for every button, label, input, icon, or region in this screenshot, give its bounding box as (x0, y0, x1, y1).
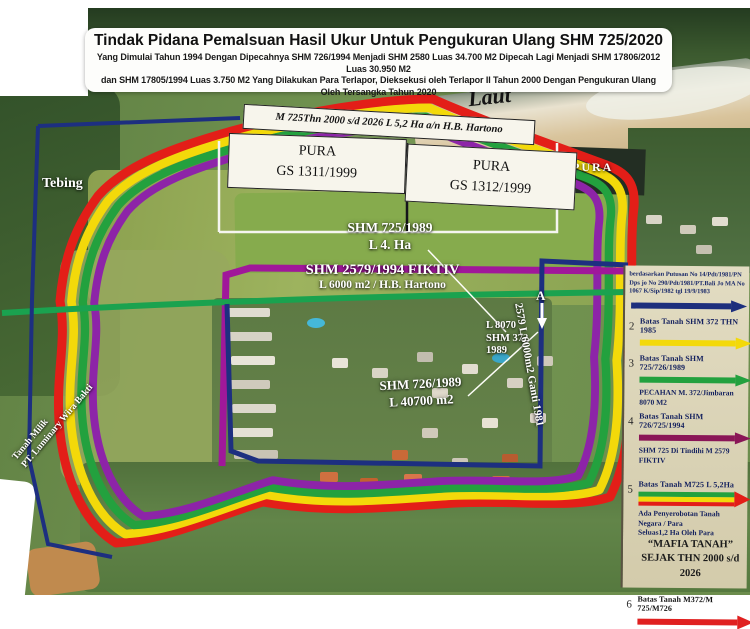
legend-panel: berdasarkan Putusan No 14/Pdt/1981/PN Dp… (621, 265, 750, 588)
right-buildings (646, 215, 662, 224)
legend-arrow-red (637, 614, 750, 629)
subtitle-line2: dan SHM 17805/1994 Luas 3.750 M2 Yang Di… (91, 75, 666, 98)
legend-arrow-magenta (639, 432, 750, 445)
pools (307, 318, 325, 328)
legend-arrow-navy (631, 299, 747, 312)
villa-rooftops (332, 358, 348, 368)
pura-small-label: PURA (572, 160, 613, 175)
pura-1311-box: PURA GS 1311/1999 (227, 133, 407, 194)
marker-a-label: A (536, 288, 545, 304)
legend-reference-text: berdasarkan Putusan No 14/Pdt/1981/PN Dp… (629, 271, 745, 298)
tebing-label: Tebing (42, 176, 83, 192)
resort-rooftops (226, 308, 270, 317)
shm2579-label: SHM 2579/1994 FIKTIV L 6000 m2 / H.B. Ha… (255, 262, 510, 293)
page-margin-top (0, 0, 750, 8)
field-left (60, 250, 230, 485)
shm726-label: SHM 726/1989 L 40700 m2 (355, 373, 487, 414)
legend-arrow-rainbow (638, 491, 750, 508)
legend-item-3: 3 Batas Tanah SHM 725/726/1989 PECAHAN M… (628, 353, 744, 408)
forest-right (628, 128, 750, 273)
page-margin-topleft (0, 0, 88, 96)
page-title: Tindak Pidana Pemalsuan Hasil Ukur Untuk… (85, 32, 672, 50)
title-card: Tindak Pidana Pemalsuan Hasil Ukur Untuk… (85, 28, 672, 92)
legend-arrow-green (639, 374, 750, 387)
legend-item-2: 2 Batas Tanah SHM 372 THN 1985 (629, 316, 745, 349)
legend-item-4: 4 Batas Tanah SHM 726/725/1994 SHM 725 D… (628, 412, 744, 467)
pura-1312-box: PURA GS 1312/1999 (405, 144, 578, 211)
subtitle-line1: Yang Dimulai Tahun 1994 Dengan Dipecahny… (91, 52, 666, 75)
poster: Tindak Pidana Pemalsuan Hasil Ukur Untuk… (0, 0, 750, 629)
legend-item-1 (629, 299, 745, 312)
shm725-label: SHM 725/1989 L 4. Ha (315, 220, 465, 254)
village-rooftops (320, 472, 338, 482)
legend-arrow-yellow (640, 337, 750, 350)
legend-item-6: 6 Batas Tanah M372/M 725/M726 SEJAK THN … (626, 594, 743, 629)
legend-item-5: 5 Batas Tanah M725 L 5,2Ha Ada Penyerobo… (627, 479, 744, 581)
bench-object (25, 540, 101, 597)
